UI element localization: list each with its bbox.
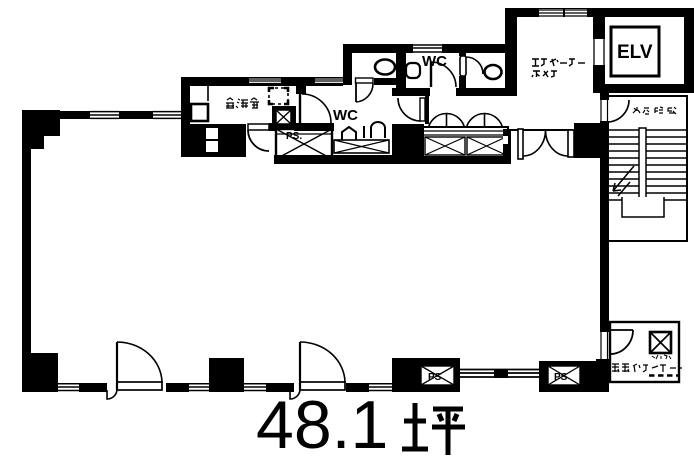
- svg-text:PS.: PS.: [286, 131, 302, 142]
- svg-text:PS: PS: [428, 372, 442, 383]
- svg-text:48.1: 48.1: [256, 387, 388, 463]
- svg-text:PS: PS: [554, 372, 568, 383]
- svg-text:ELV: ELV: [617, 42, 653, 63]
- svg-text:WC: WC: [333, 107, 358, 124]
